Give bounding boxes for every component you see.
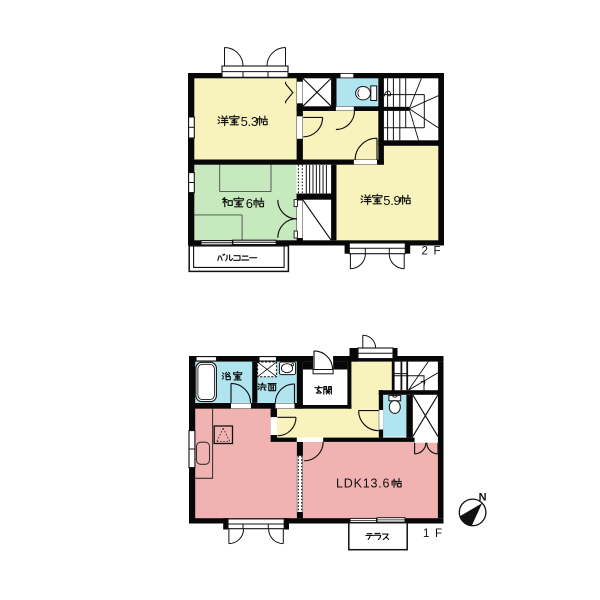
- svg-text:5.3: 5.3: [241, 114, 258, 129]
- svg-text:5.9: 5.9: [383, 193, 400, 208]
- svg-text:1 F: 1 F: [423, 528, 443, 540]
- svg-text:6: 6: [246, 196, 253, 211]
- svg-text:2 F: 2 F: [422, 246, 442, 258]
- svg-text:N: N: [479, 492, 487, 504]
- svg-text:LDK13.6: LDK13.6: [336, 476, 390, 490]
